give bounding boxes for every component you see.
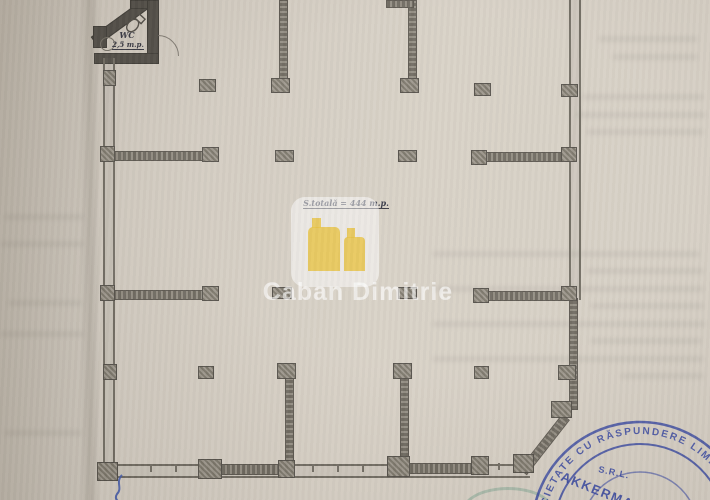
bottom-wall-solid-2	[409, 463, 474, 474]
mid-wall-row1-right	[482, 152, 572, 162]
window-tick	[337, 465, 339, 472]
window-tick	[498, 463, 500, 470]
wc-bottom-wall	[94, 53, 159, 64]
top-partition-wall-2	[408, 0, 417, 82]
column-block	[278, 460, 295, 478]
sink-icon	[99, 36, 117, 53]
bottom-partition-wall-1	[285, 377, 294, 469]
column-block	[277, 363, 296, 379]
watermark-building-icon	[344, 237, 365, 271]
column-block	[100, 146, 115, 162]
column-block	[100, 285, 115, 301]
wc-right-wall	[147, 0, 159, 64]
toilet-icon	[121, 11, 147, 37]
watermark-name: Caban Dimitrie	[248, 278, 468, 307]
column-block	[471, 456, 489, 475]
left-exterior-wall	[103, 58, 115, 466]
bottom-exterior-wall	[103, 464, 530, 478]
mid-wall-row1-left	[107, 151, 205, 161]
column-block	[471, 150, 487, 165]
top-partition-wall-1	[279, 0, 288, 82]
window-tick	[175, 465, 177, 472]
column-block	[398, 150, 417, 162]
column-block	[561, 147, 577, 162]
column-block	[393, 363, 412, 379]
column-block	[202, 286, 219, 301]
column-block	[474, 83, 491, 96]
column-block	[202, 147, 219, 162]
window-tick	[362, 465, 364, 472]
column-block	[474, 366, 489, 379]
column-block	[400, 78, 419, 93]
bottom-wall-solid-1	[221, 464, 283, 475]
pen-mark	[112, 474, 126, 500]
mid-wall-row2-right	[484, 291, 572, 301]
window-tick	[150, 465, 152, 472]
column-block	[198, 459, 222, 479]
column-block	[199, 79, 216, 92]
wc-top-wall	[130, 0, 156, 9]
company-stamp: SOCIETATE CU RĂSPUNDERE LIMITATĂ S.R.L. …	[530, 400, 710, 500]
right-wall-lower	[569, 298, 578, 410]
paper-edge-shadow	[0, 0, 90, 500]
paper-crease	[80, 0, 100, 500]
watermark-logo	[291, 197, 379, 287]
column-block	[561, 84, 578, 97]
right-exterior-wall	[569, 0, 581, 300]
stamp-ring-text: SOCIETATE CU RĂSPUNDERE LIMITATĂ	[536, 426, 710, 500]
column-block	[103, 364, 117, 380]
mid-wall-row2-left	[107, 290, 205, 300]
watermark-chimney-icon	[347, 228, 355, 238]
door-arc-icon	[137, 35, 179, 77]
column-block	[473, 288, 489, 303]
wc-label: WC	[112, 30, 142, 40]
column-block	[103, 70, 116, 86]
column-block	[271, 78, 290, 93]
watermark-chimney-icon	[312, 218, 321, 228]
photographed-floor-plan: WC 2,5 m.p.	[0, 0, 710, 500]
svg-text:SOCIETATE CU RĂSPUNDERE LIMITA: SOCIETATE CU RĂSPUNDERE LIMITATĂ	[536, 426, 710, 500]
wc-area-label: 2,5 m.p.	[104, 40, 152, 49]
column-block	[558, 365, 576, 380]
bottom-partition-wall-2	[400, 377, 409, 467]
column-block	[198, 366, 214, 379]
column-block	[561, 286, 577, 301]
column-block	[275, 150, 294, 162]
column-block	[387, 456, 410, 477]
top-partition-stub	[386, 0, 414, 8]
watermark-building-icon	[308, 227, 340, 271]
window-tick	[312, 465, 314, 472]
